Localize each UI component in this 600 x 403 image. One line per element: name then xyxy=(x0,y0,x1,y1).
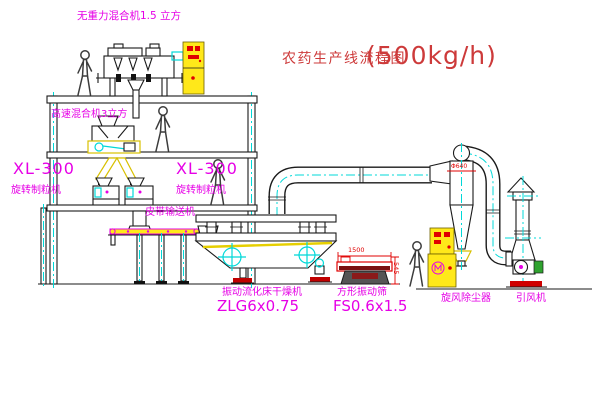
diagram-title-capacity: (500kg/h) xyxy=(366,43,497,68)
high-speed-mixer-machine xyxy=(88,116,140,153)
process-flow-diagram: 无重力混合机1.5 立方 农药生产线流程图 (500kg/h) 高速混合机3立方… xyxy=(0,0,600,403)
granulator-unit-2 xyxy=(122,178,156,205)
control-cabinet-ground xyxy=(428,228,456,287)
label-granulator-left-name: 旋转制粒机 xyxy=(11,186,61,196)
label-sieve-model: FS0.6x1.5 xyxy=(333,299,407,314)
y-chute xyxy=(96,158,136,179)
granulator-unit-1 xyxy=(90,178,122,205)
label-granulator-mid-name: 旋转制粒机 xyxy=(176,186,226,196)
worker-figure-top xyxy=(78,51,92,95)
label-granulator-left-model: XL-300 xyxy=(13,161,75,177)
dimension-sieve-height: 545 xyxy=(393,262,400,274)
control-cabinet-top xyxy=(183,42,204,94)
label-high-speed-mixer: 高速混合机3立方 xyxy=(51,110,127,120)
label-cyclone: 旋风除尘器 xyxy=(441,294,491,304)
dryer-exhaust-duct xyxy=(268,167,436,216)
worker-figure-3f xyxy=(156,107,170,151)
vibrating-sieve-machine xyxy=(337,252,399,284)
label-fan: 引风机 xyxy=(516,294,546,304)
label-granulator-mid-model: XL-300 xyxy=(176,161,238,177)
label-dryer-model: ZLG6x0.75 xyxy=(217,299,299,314)
label-belt-conveyor: 皮带输送机 xyxy=(145,208,195,218)
label-gravity-mixer: 无重力混合机1.5 立方 xyxy=(77,11,181,22)
fluid-bed-dryer-machine xyxy=(196,215,336,283)
belt-conveyor-machine xyxy=(108,229,200,284)
dimension-cyclone-diameter: Φ640 xyxy=(451,164,467,170)
dimension-sieve-length: 1500 xyxy=(348,247,365,254)
gravity-mixer-machine xyxy=(96,44,189,118)
worker-figure-ground xyxy=(410,242,424,286)
